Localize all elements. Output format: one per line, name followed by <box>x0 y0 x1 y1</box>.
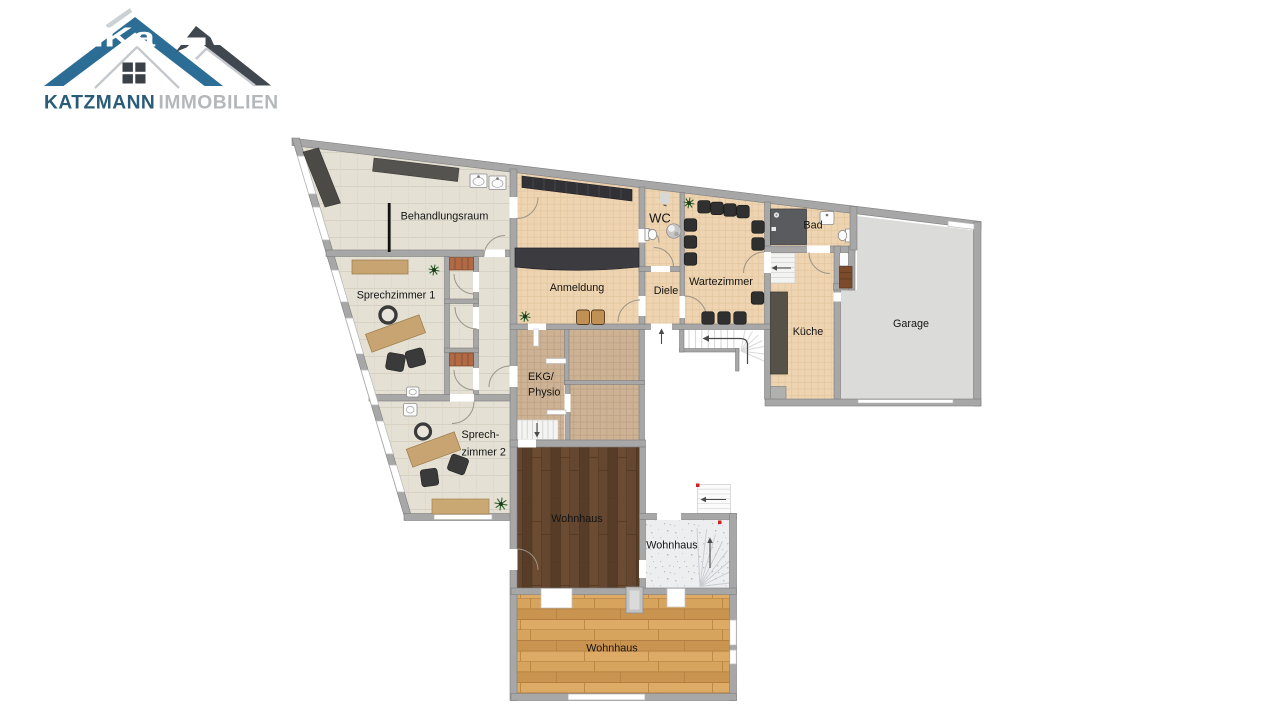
svg-text:Wohnhaus: Wohnhaus <box>586 643 638 655</box>
svg-text:WC: WC <box>649 211 671 226</box>
svg-text:Anmeldung: Anmeldung <box>550 282 605 294</box>
svg-text:KATZMANN: KATZMANN <box>44 93 155 114</box>
svg-text:Wartezimmer: Wartezimmer <box>689 276 753 288</box>
svg-text:Diele: Diele <box>654 285 679 297</box>
svg-text:zimmer 2: zimmer 2 <box>462 447 506 459</box>
svg-text:Sprechzimmer 1: Sprechzimmer 1 <box>357 290 436 302</box>
svg-text:EKG/: EKG/ <box>528 371 554 383</box>
svg-text:Physio: Physio <box>528 387 560 399</box>
svg-text:Wohnhaus: Wohnhaus <box>551 513 603 525</box>
svg-text:IMMOBILIEN: IMMOBILIEN <box>159 93 279 114</box>
svg-text:Wohnhaus: Wohnhaus <box>646 540 698 552</box>
svg-text:.Ka: .Ka <box>93 22 156 53</box>
svg-text:Bad: Bad <box>803 220 822 232</box>
svg-text:Küche: Küche <box>793 326 824 338</box>
svg-text:Sprech-: Sprech- <box>462 429 500 441</box>
svg-text:Garage: Garage <box>893 318 929 330</box>
svg-text:Behandlungsraum: Behandlungsraum <box>401 211 489 223</box>
